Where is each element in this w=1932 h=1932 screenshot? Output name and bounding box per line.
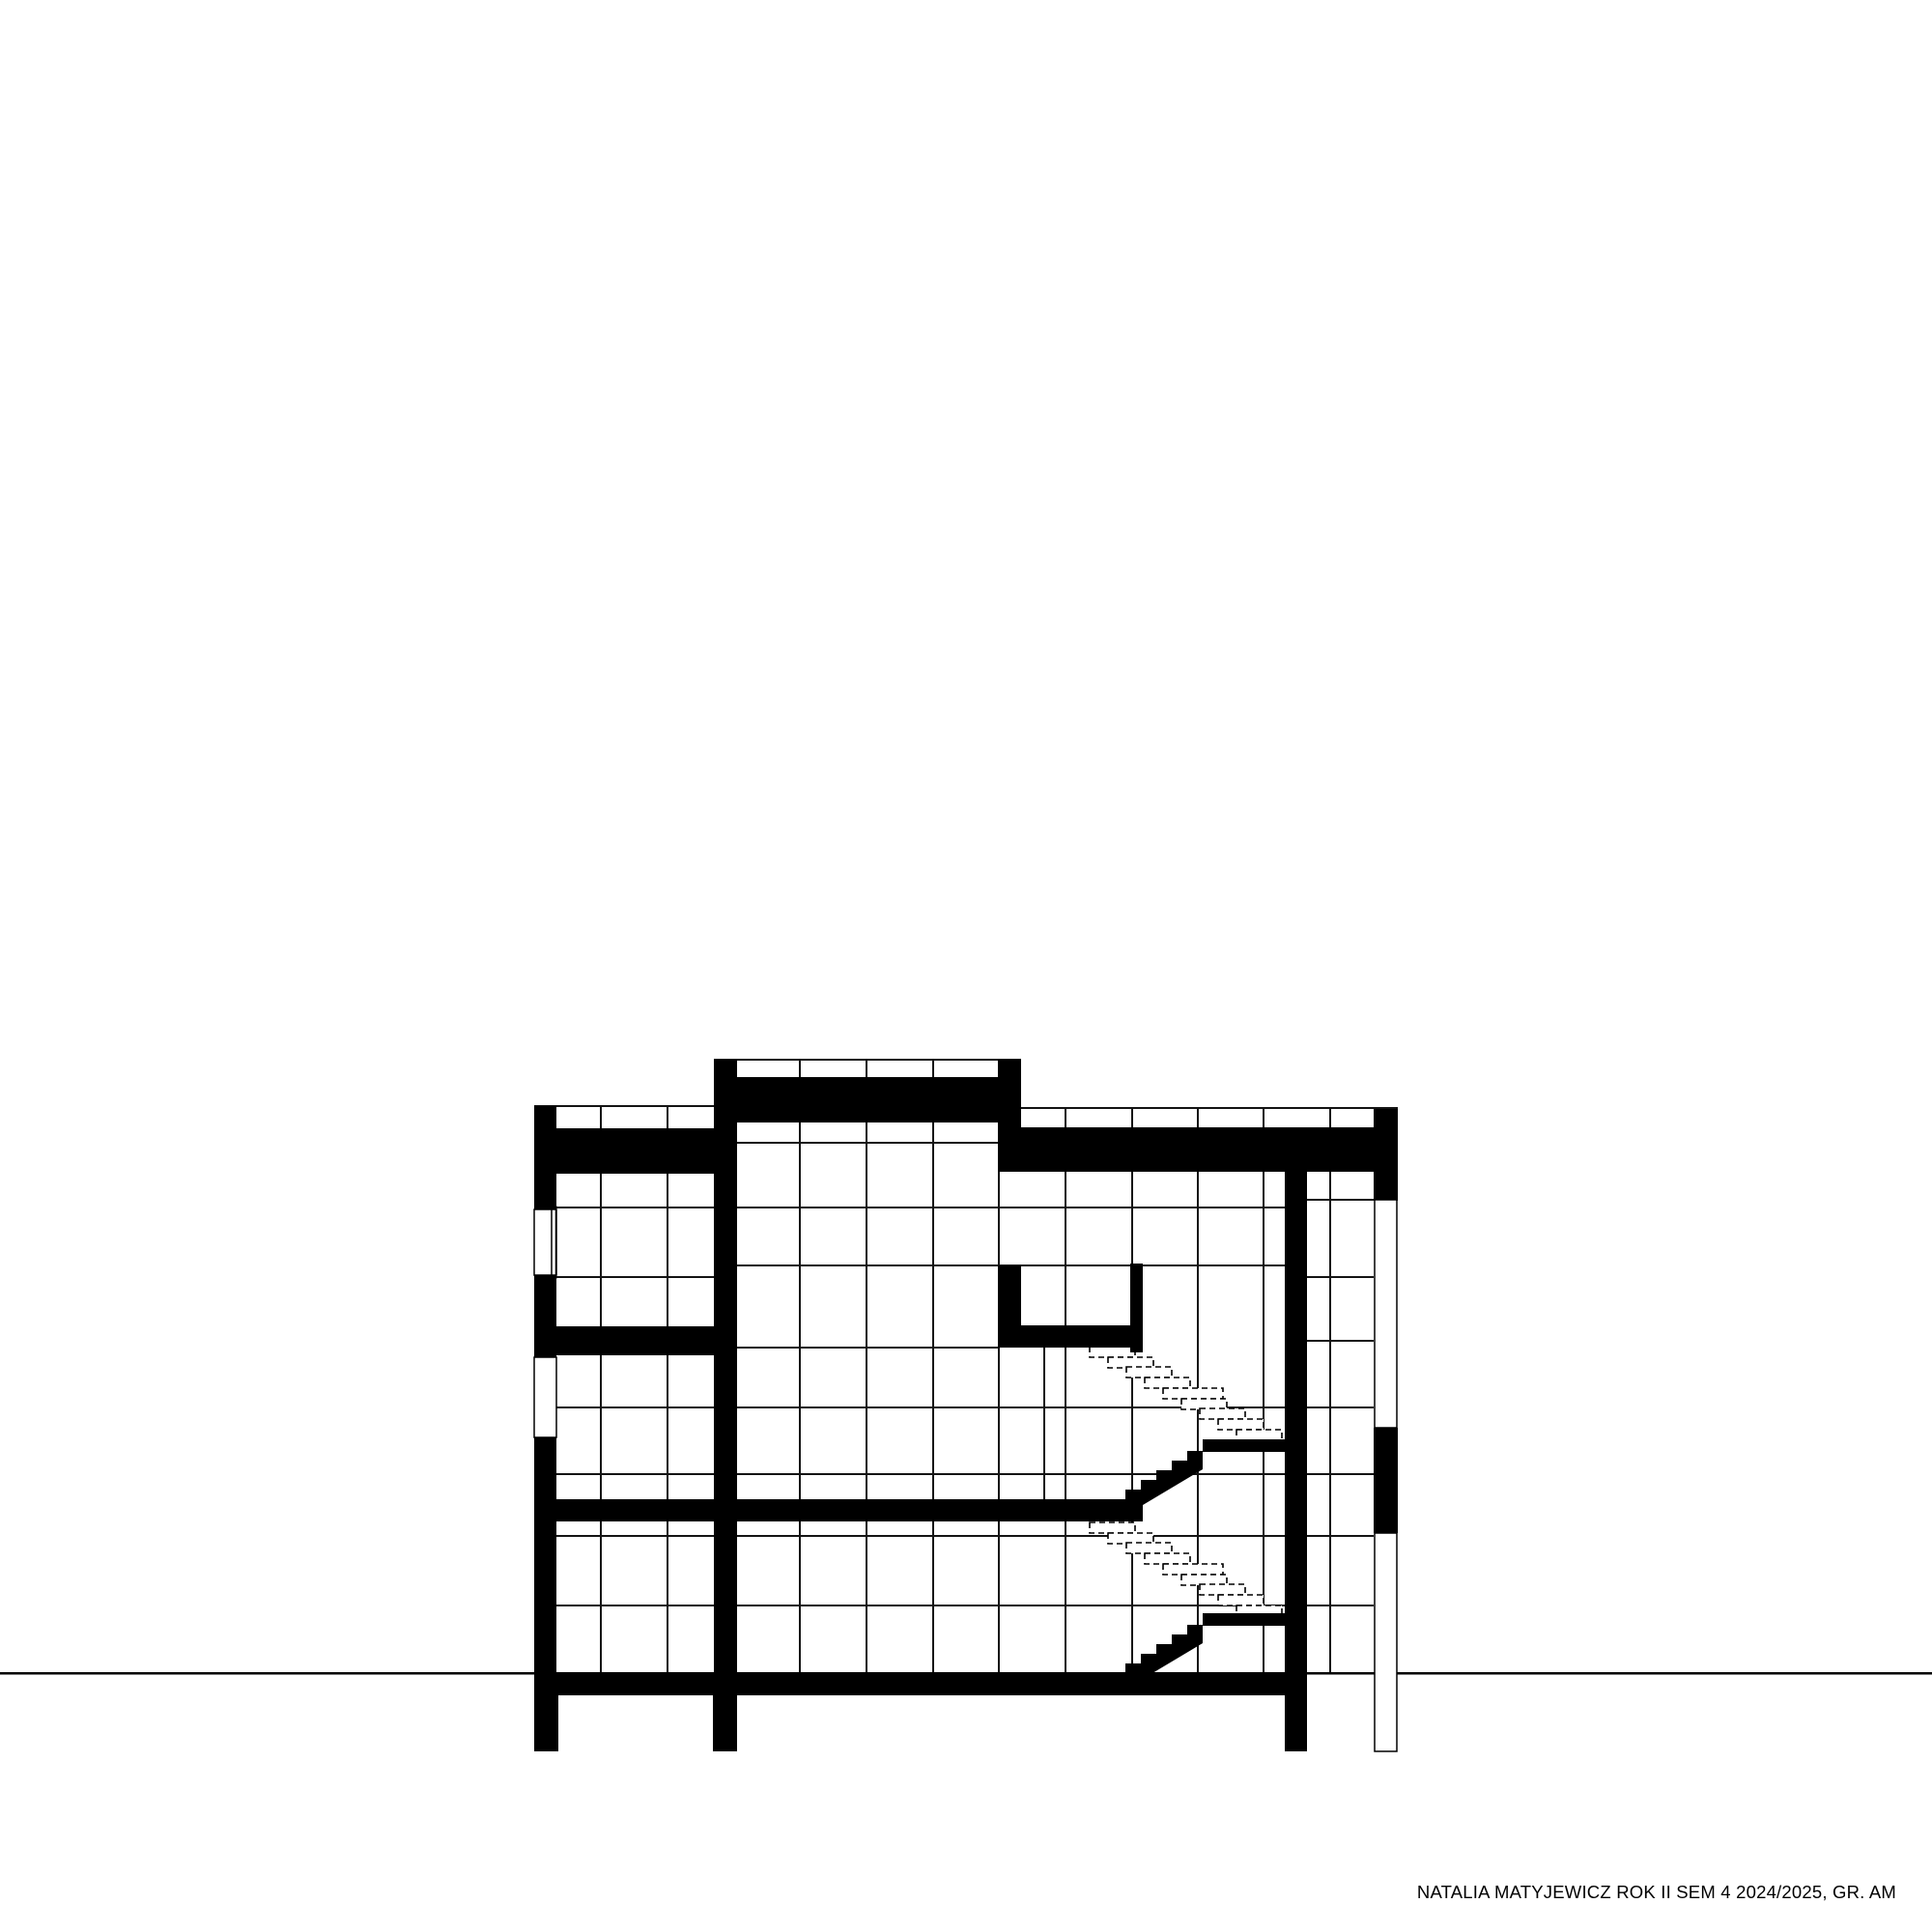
building-section-drawing [0,0,1932,1932]
upper-stair-flight-dashed [1090,1347,1282,1440]
bridge-right-balustrade [1130,1264,1143,1352]
right-wall-upper [1374,1109,1398,1200]
interior-foundation-column [713,1695,737,1751]
left-wall-window-upper [534,1209,556,1275]
left-foundation-column [534,1695,558,1751]
drawing-sheet: NATALIA MATYJEWICZ ROK II SEM 4 2024/202… [0,0,1932,1932]
sheet-caption: NATALIA MATYJEWICZ ROK II SEM 4 2024/202… [1417,1882,1896,1903]
bridge-left-stub [998,1265,1021,1348]
upper-stair-landing [1203,1439,1285,1452]
bridge-slab [1021,1325,1143,1348]
stair-core-wall [1285,1172,1307,1695]
stair-wall-foundation-column [1285,1695,1307,1751]
upper-stair-flight-solid [1125,1451,1203,1513]
lower-stair-landing [1203,1613,1285,1626]
wall-openings [534,1200,1397,1751]
right-wall-middle [1374,1428,1398,1533]
right-wall-window-upper [1375,1200,1397,1428]
left-wall-lower [534,1437,556,1695]
mid-floor-slab [534,1499,1143,1521]
cut-structure [534,1060,1398,1751]
ground-floor-slab [534,1673,1307,1695]
right-roof-slab [998,1127,1374,1172]
left-roof-slab [534,1128,737,1174]
right-wall-glazing-lower [1375,1533,1397,1751]
left-wing-floor-slab [534,1326,737,1355]
left-wall-window-lower [534,1357,556,1437]
central-roof-slab [737,1077,998,1122]
